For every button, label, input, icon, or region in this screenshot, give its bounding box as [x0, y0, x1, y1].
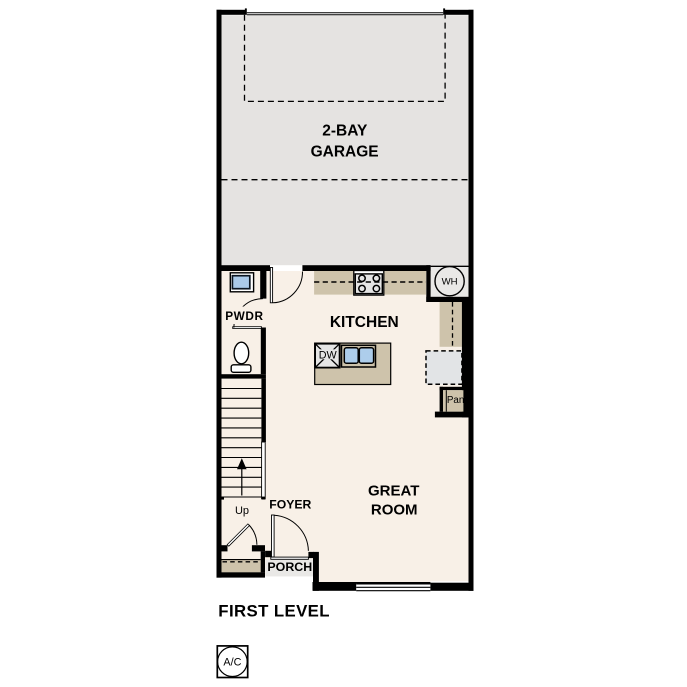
- svg-text:FIRST LEVEL: FIRST LEVEL: [218, 602, 330, 621]
- svg-text:GREAT: GREAT: [368, 483, 419, 500]
- svg-text:WH: WH: [442, 277, 458, 288]
- svg-text:PWDR: PWDR: [225, 309, 263, 323]
- svg-text:2-BAY: 2-BAY: [322, 122, 368, 139]
- svg-text:PORCH: PORCH: [267, 560, 312, 574]
- svg-text:FOYER: FOYER: [269, 497, 311, 511]
- svg-text:GARAGE: GARAGE: [311, 143, 379, 160]
- svg-text:ROOM: ROOM: [371, 501, 418, 518]
- svg-text:Pan: Pan: [447, 395, 464, 406]
- svg-text:Up: Up: [235, 505, 249, 517]
- svg-text:A/C: A/C: [223, 657, 241, 669]
- svg-text:KITCHEN: KITCHEN: [330, 314, 399, 331]
- svg-text:DW: DW: [319, 349, 338, 361]
